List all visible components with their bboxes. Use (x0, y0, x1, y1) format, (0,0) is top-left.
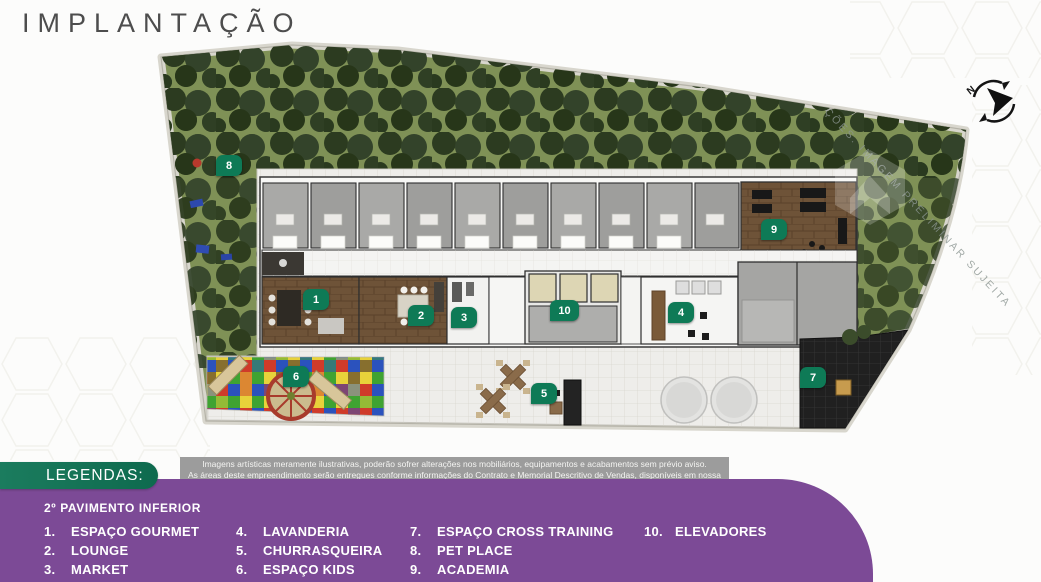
legend-item: 5. CHURRASQUEIRA (236, 543, 410, 558)
kids-play-mat (207, 355, 384, 419)
legend-item-label: ELEVADORES (675, 524, 767, 539)
legend-item-label: ESPAÇO GOURMET (71, 524, 199, 539)
legend-column-4: 10. ELEVADORES (644, 524, 794, 581)
legend-item-label: ACADEMIA (437, 562, 509, 577)
legend-item-label: LOUNGE (71, 543, 128, 558)
disclaimer-line-1: Imagens artísticas meramente ilustrativa… (180, 459, 729, 470)
legend-item: 4. LAVANDERIA (236, 524, 410, 539)
legend-item-label: CHURRASQUEIRA (263, 543, 382, 558)
legend-column-1: 1. ESPAÇO GOURMET 2. LOUNGE 3. MARKET (44, 524, 236, 581)
floor-label: 2º PAVIMENTO INFERIOR (44, 501, 201, 515)
legend-grid: 1. ESPAÇO GOURMET 2. LOUNGE 3. MARKET 4.… (44, 524, 794, 581)
disclaimer-strip: Imagens artísticas meramente ilustrativa… (180, 457, 729, 481)
legend-item: 6. ESPAÇO KIDS (236, 562, 410, 577)
legend-item: 8. PET PLACE (410, 543, 644, 558)
legend-item-number: 6. (236, 562, 263, 577)
legend-item: 1. ESPAÇO GOURMET (44, 524, 236, 539)
legend-item-number: 4. (236, 524, 263, 539)
legend-item-number: 1. (44, 524, 71, 539)
legend-banner: LEGENDAS: (0, 462, 158, 489)
legend-item: 3. MARKET (44, 562, 236, 577)
legend-item-number: 2. (44, 543, 71, 558)
legend-item: 7. ESPAÇO CROSS TRAINING (410, 524, 644, 539)
legend-item: 9. ACADEMIA (410, 562, 644, 577)
legend-banner-label: LEGENDAS: (46, 467, 144, 485)
legend-item: 2. LOUNGE (44, 543, 236, 558)
cross-training-area (800, 325, 908, 428)
legend-item-label: ESPAÇO KIDS (263, 562, 355, 577)
legend-item-number: 5. (236, 543, 263, 558)
brochure-page: IMPLANTAÇÃO (0, 0, 1041, 582)
legend-column-2: 4. LAVANDERIA 5. CHURRASQUEIRA 6. ESPAÇO… (236, 524, 410, 581)
legend-item-number: 3. (44, 562, 71, 577)
legend-item-label: MARKET (71, 562, 128, 577)
legend-item-number: 7. (410, 524, 437, 539)
legend-item-number: 9. (410, 562, 437, 577)
legend-column-3: 7. ESPAÇO CROSS TRAINING 8. PET PLACE 9.… (410, 524, 644, 581)
legend-item: 10. ELEVADORES (644, 524, 794, 539)
legend-item-label: LAVANDERIA (263, 524, 349, 539)
legend-item-number: 8. (410, 543, 437, 558)
legend-item-number: 10. (644, 524, 675, 539)
legend-item-label: ESPAÇO CROSS TRAINING (437, 524, 614, 539)
legend-item-label: PET PLACE (437, 543, 513, 558)
building-footprint (260, 177, 857, 347)
